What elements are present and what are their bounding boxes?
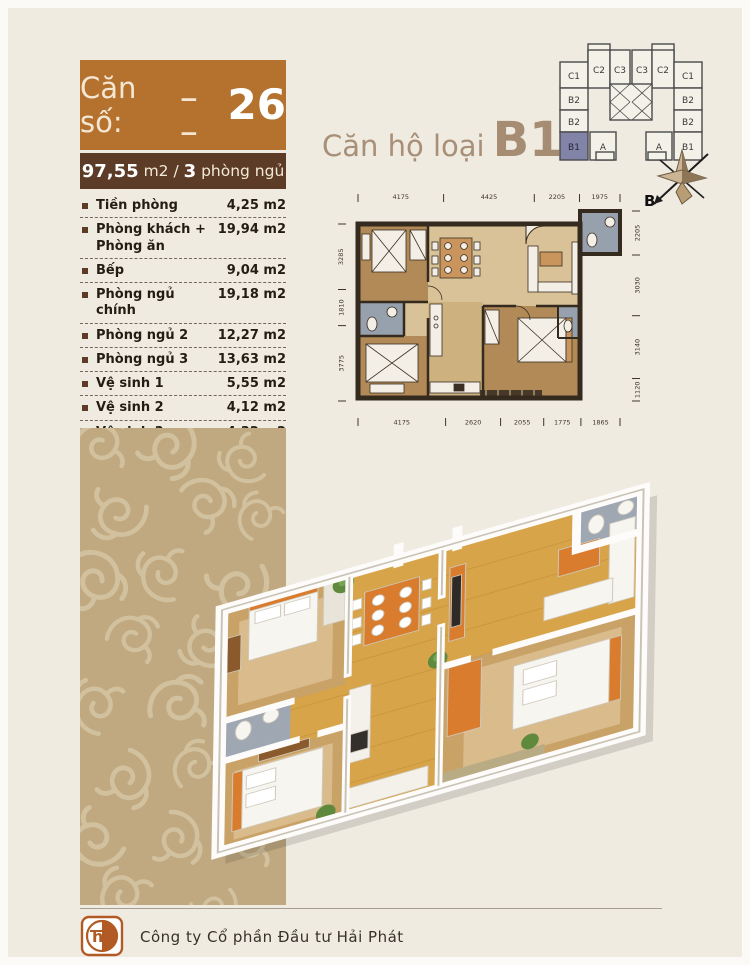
svg-text:B2: B2 — [568, 118, 580, 128]
svg-text:3140: 3140 — [634, 339, 642, 356]
svg-text:1810: 1810 — [337, 299, 345, 316]
room-area: 9,04 m2 — [227, 263, 286, 278]
room-area: 4,25 m2 — [227, 198, 286, 213]
unit-number-blank: _ _ — [182, 67, 222, 135]
svg-text:B2: B2 — [682, 118, 694, 128]
room-label: Phòng ngủ 2 — [96, 328, 218, 344]
bullet-icon — [82, 357, 88, 363]
table-row: Vệ sinh 15,55 m2 — [80, 372, 286, 396]
svg-text:2205: 2205 — [634, 225, 642, 242]
hp-logo-icon: hp — [80, 915, 124, 957]
area-unit: m2 / — [139, 162, 184, 180]
table-row: Phòng ngủ 313,63 m2 — [80, 348, 286, 372]
svg-text:1120: 1120 — [634, 382, 642, 399]
svg-text:3030: 3030 — [634, 277, 642, 294]
room-label: Phòng ngủ 3 — [96, 352, 218, 368]
svg-text:C2: C2 — [593, 66, 605, 76]
svg-text:1975: 1975 — [592, 193, 609, 201]
table-row: Phòng ngủ chính19,18 m2 — [80, 283, 286, 324]
svg-text:C1: C1 — [568, 72, 580, 82]
svg-text:3775: 3775 — [338, 355, 346, 372]
bullet-icon — [82, 227, 88, 233]
room-label: Phòng khách + Phòng ăn — [96, 222, 218, 255]
bullet-icon — [82, 381, 88, 387]
room-label: Vệ sinh 2 — [96, 400, 227, 416]
svg-text:4175: 4175 — [393, 193, 410, 201]
bullet-icon — [82, 292, 88, 298]
bedroom-count: 3 — [184, 161, 197, 182]
company-name: Công ty Cổ phần Đầu tư Hải Phát — [140, 928, 404, 946]
floor-plan-3d-drawing — [122, 438, 667, 908]
brochure-page: Căn số: _ _ 26 97,55 m2 / 3 phòng ngủ Ti… — [0, 0, 750, 965]
floor-plan-3d — [122, 438, 667, 912]
bullet-icon — [82, 203, 88, 209]
svg-text:4175: 4175 — [394, 419, 411, 427]
table-row: Vệ sinh 24,12 m2 — [80, 396, 286, 420]
svg-text:C3: C3 — [636, 66, 648, 76]
svg-text:2205: 2205 — [549, 193, 566, 201]
svg-text:2055: 2055 — [514, 419, 531, 427]
svg-text:C2: C2 — [657, 66, 669, 76]
svg-text:4425: 4425 — [481, 193, 498, 201]
room-area: 12,27 m2 — [218, 328, 286, 343]
floor-plan-2d: 4175 4425 2205 1975 4175 2620 2055 1775 … — [328, 186, 650, 442]
bedroom-label: phòng ngủ — [196, 162, 284, 180]
svg-text:3285: 3285 — [337, 249, 345, 266]
bullet-icon — [82, 268, 88, 274]
svg-text:B2: B2 — [682, 96, 694, 106]
room-label: Phòng ngủ chính — [96, 287, 218, 320]
logo-text: hp — [92, 927, 115, 946]
locator-icon: C1 C2 C3 C3 C2 C1 B2 B2 B2 B2 B1 A A B1 — [556, 40, 706, 162]
room-label: Vệ sinh 1 — [96, 376, 227, 392]
floor-plan-2d-drawing: 4175 4425 2205 1975 4175 2620 2055 1775 … — [328, 186, 650, 438]
room-label: Tiền phòng — [96, 198, 227, 214]
unit-number-label: Căn số: — [80, 71, 176, 139]
table-row: Bếp9,04 m2 — [80, 259, 286, 283]
svg-text:C3: C3 — [614, 66, 626, 76]
bullet-icon — [82, 405, 88, 411]
table-row: Phòng khách + Phòng ăn19,94 m2 — [80, 218, 286, 259]
svg-text:A: A — [600, 143, 607, 153]
apartment-type-title: Căn hộ loại B1 — [322, 116, 563, 164]
svg-text:1865: 1865 — [592, 419, 609, 427]
room-area: 13,63 m2 — [218, 352, 286, 367]
room-area: 4,12 m2 — [227, 400, 286, 415]
svg-text:B1: B1 — [568, 143, 580, 153]
type-prefix: Căn hộ loại — [322, 129, 485, 163]
bullet-icon — [82, 333, 88, 339]
area-summary-box: 97,55 m2 / 3 phòng ngủ — [80, 153, 286, 189]
area-value: 97,55 — [82, 161, 139, 182]
room-area: 19,94 m2 — [218, 222, 286, 237]
unit-number-value: 26 — [228, 84, 286, 126]
room-label: Bếp — [96, 263, 227, 279]
room-area: 19,18 m2 — [218, 287, 286, 302]
compass: B — [644, 148, 716, 214]
svg-text:1775: 1775 — [554, 419, 571, 427]
svg-text:2620: 2620 — [465, 419, 482, 427]
room-area: 5,55 m2 — [227, 376, 286, 391]
unit-number-box: Căn số: _ _ 26 — [80, 60, 286, 150]
table-row: Phòng ngủ 212,27 m2 — [80, 324, 286, 348]
svg-text:C1: C1 — [682, 72, 694, 82]
table-row: Tiền phòng4,25 m2 — [80, 194, 286, 218]
compass-icon: B — [644, 148, 716, 210]
type-code: B1 — [493, 116, 563, 164]
svg-text:B2: B2 — [568, 96, 580, 106]
company-logo: hp — [80, 915, 124, 961]
